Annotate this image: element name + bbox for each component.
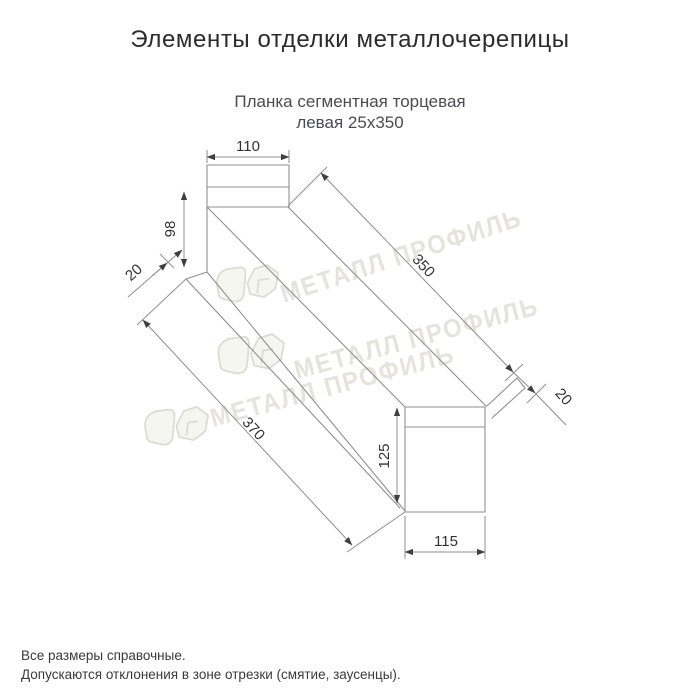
dim-end-face-height: 125 bbox=[376, 443, 393, 468]
dim-end-face-width: 115 bbox=[434, 533, 458, 550]
dim-top-tab-width: 110 bbox=[236, 138, 260, 155]
watermark-top: МЕТАЛЛ ПРОФИЛЬ bbox=[217, 202, 526, 308]
footer-note-line2: Допускаются отклонения в зоне отрезки (с… bbox=[21, 666, 401, 685]
technical-drawing: МЕТАЛЛ ПРОФИЛЬ МЕТАЛЛ ПРОФИЛЬ МЕТАЛЛ ПРО… bbox=[0, 0, 700, 700]
drawing-page: Элементы отделки металлочерепицы Планка … bbox=[0, 0, 700, 700]
dim-far-flange-width: 20 bbox=[551, 385, 575, 409]
dim-near-flange-width: 20 bbox=[122, 261, 146, 285]
dim-vertical-face-height: 98 bbox=[162, 221, 179, 238]
footer-note-line1: Все размеры справочные. bbox=[21, 647, 401, 666]
footer-notes: Все размеры справочные. Допускаются откл… bbox=[21, 647, 401, 684]
metall-profil-logo-icon bbox=[145, 407, 208, 445]
